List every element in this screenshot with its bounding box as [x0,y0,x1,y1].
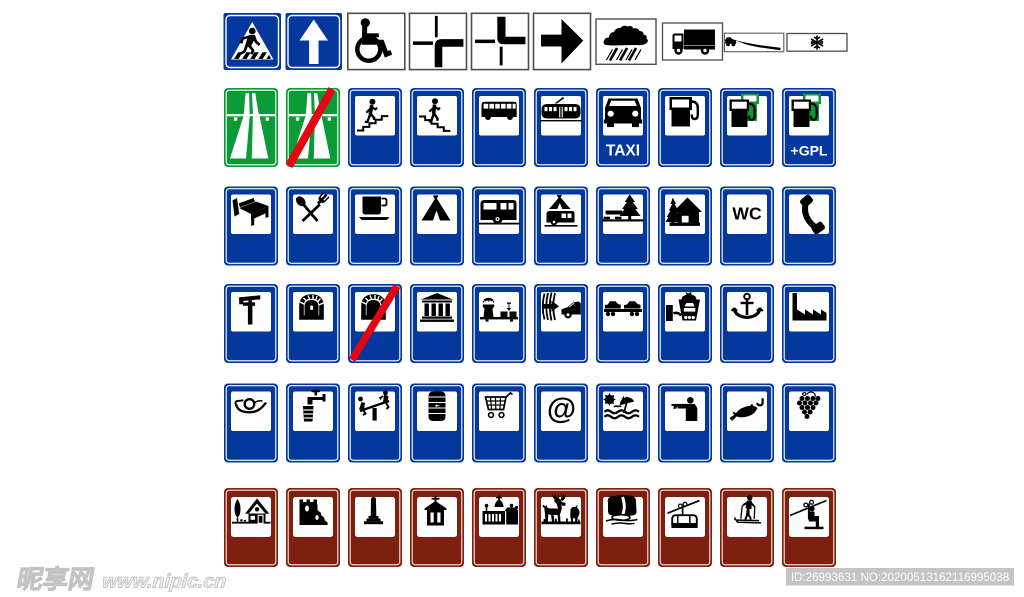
svg-text:昵享网: 昵享网 [15,564,97,594]
svg-text:TAXI: TAXI [606,143,640,160]
svg-text:WC: WC [732,204,762,224]
svg-text:@: @ [547,393,576,426]
svg-text:+GPL: +GPL [791,143,828,159]
svg-text:ID:26993631 NO:202005131621169: ID:26993631 NO:20200513162116995038 [791,571,1009,584]
svg-text:www.nipic.cn: www.nipic.cn [102,571,227,593]
